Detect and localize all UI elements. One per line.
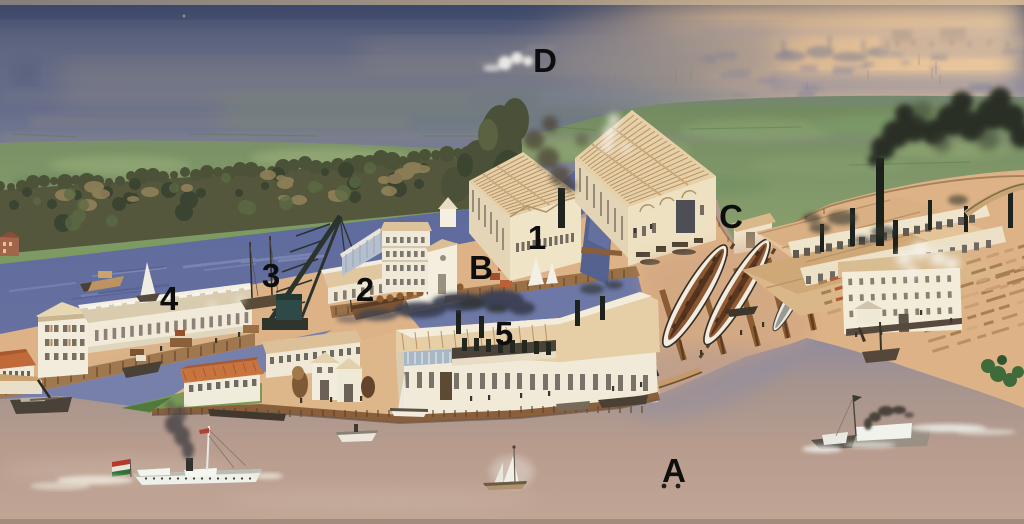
svg-text:A: A bbox=[662, 452, 686, 489]
svg-text:5: 5 bbox=[495, 315, 513, 352]
svg-text:1: 1 bbox=[528, 219, 546, 256]
svg-text:C: C bbox=[719, 198, 743, 235]
svg-text:D: D bbox=[533, 42, 557, 79]
svg-text:3: 3 bbox=[262, 257, 280, 294]
svg-text:4: 4 bbox=[160, 280, 179, 317]
svg-text:2: 2 bbox=[356, 271, 374, 308]
svg-text:B: B bbox=[469, 249, 493, 286]
